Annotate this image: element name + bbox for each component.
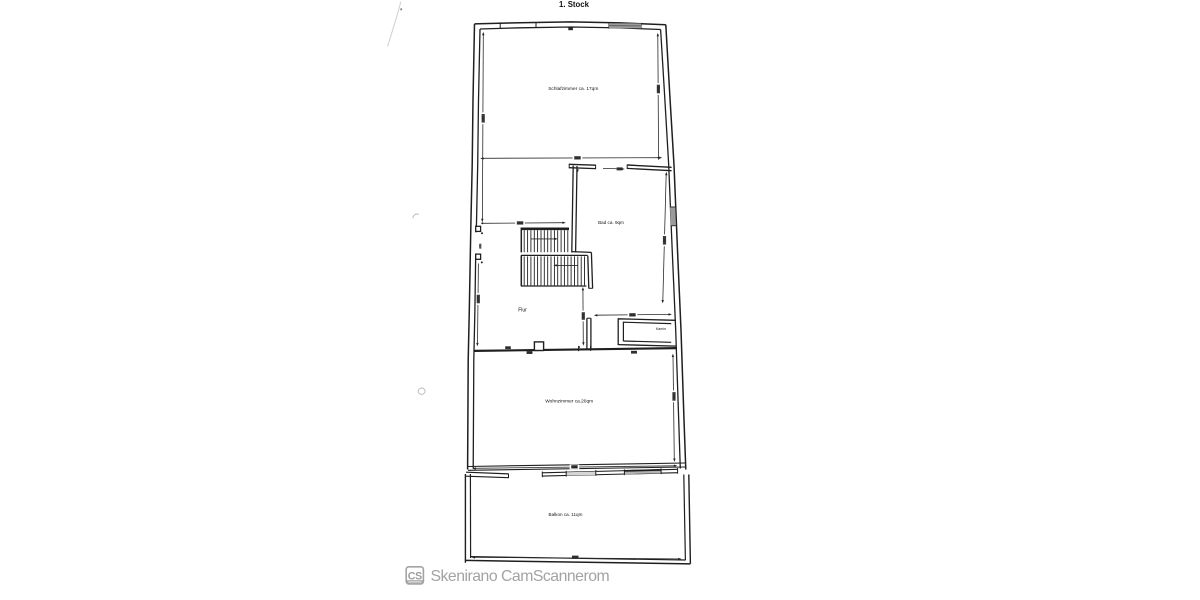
svg-text:175: 175 <box>581 313 585 318</box>
svg-text:85: 85 <box>478 244 482 248</box>
svg-text:Skenirano CamScannerom: Skenirano CamScannerom <box>431 568 610 585</box>
svg-text:488: 488 <box>572 465 578 469</box>
svg-text:Bad ca. 9qm: Bad ca. 9qm <box>598 220 624 225</box>
svg-text:457: 457 <box>662 237 666 242</box>
svg-text:487: 487 <box>481 115 485 120</box>
svg-text:349: 349 <box>617 167 623 171</box>
svg-text:1. Stock: 1. Stock <box>559 0 590 9</box>
svg-text:413: 413 <box>575 156 581 160</box>
svg-text:Flur: Flur <box>518 307 527 313</box>
svg-text:200: 200 <box>517 221 523 225</box>
svg-text:Kamin: Kamin <box>656 327 666 331</box>
svg-text:Balkon ca. 11qm: Balkon ca. 11qm <box>549 512 583 517</box>
svg-text:Wohnzimmer ca.20qm: Wohnzimmer ca.20qm <box>545 398 593 404</box>
svg-text:317: 317 <box>672 394 676 399</box>
svg-text:545: 545 <box>505 346 511 350</box>
svg-text:276: 276 <box>476 296 480 301</box>
svg-text:298: 298 <box>527 351 533 355</box>
svg-text:800: 800 <box>573 556 579 560</box>
svg-text:345: 345 <box>656 86 660 91</box>
svg-text:205: 205 <box>631 350 637 354</box>
svg-text:205: 205 <box>630 313 636 317</box>
svg-text:Schlafzimmer ca. 17qm: Schlafzimmer ca. 17qm <box>548 86 598 92</box>
